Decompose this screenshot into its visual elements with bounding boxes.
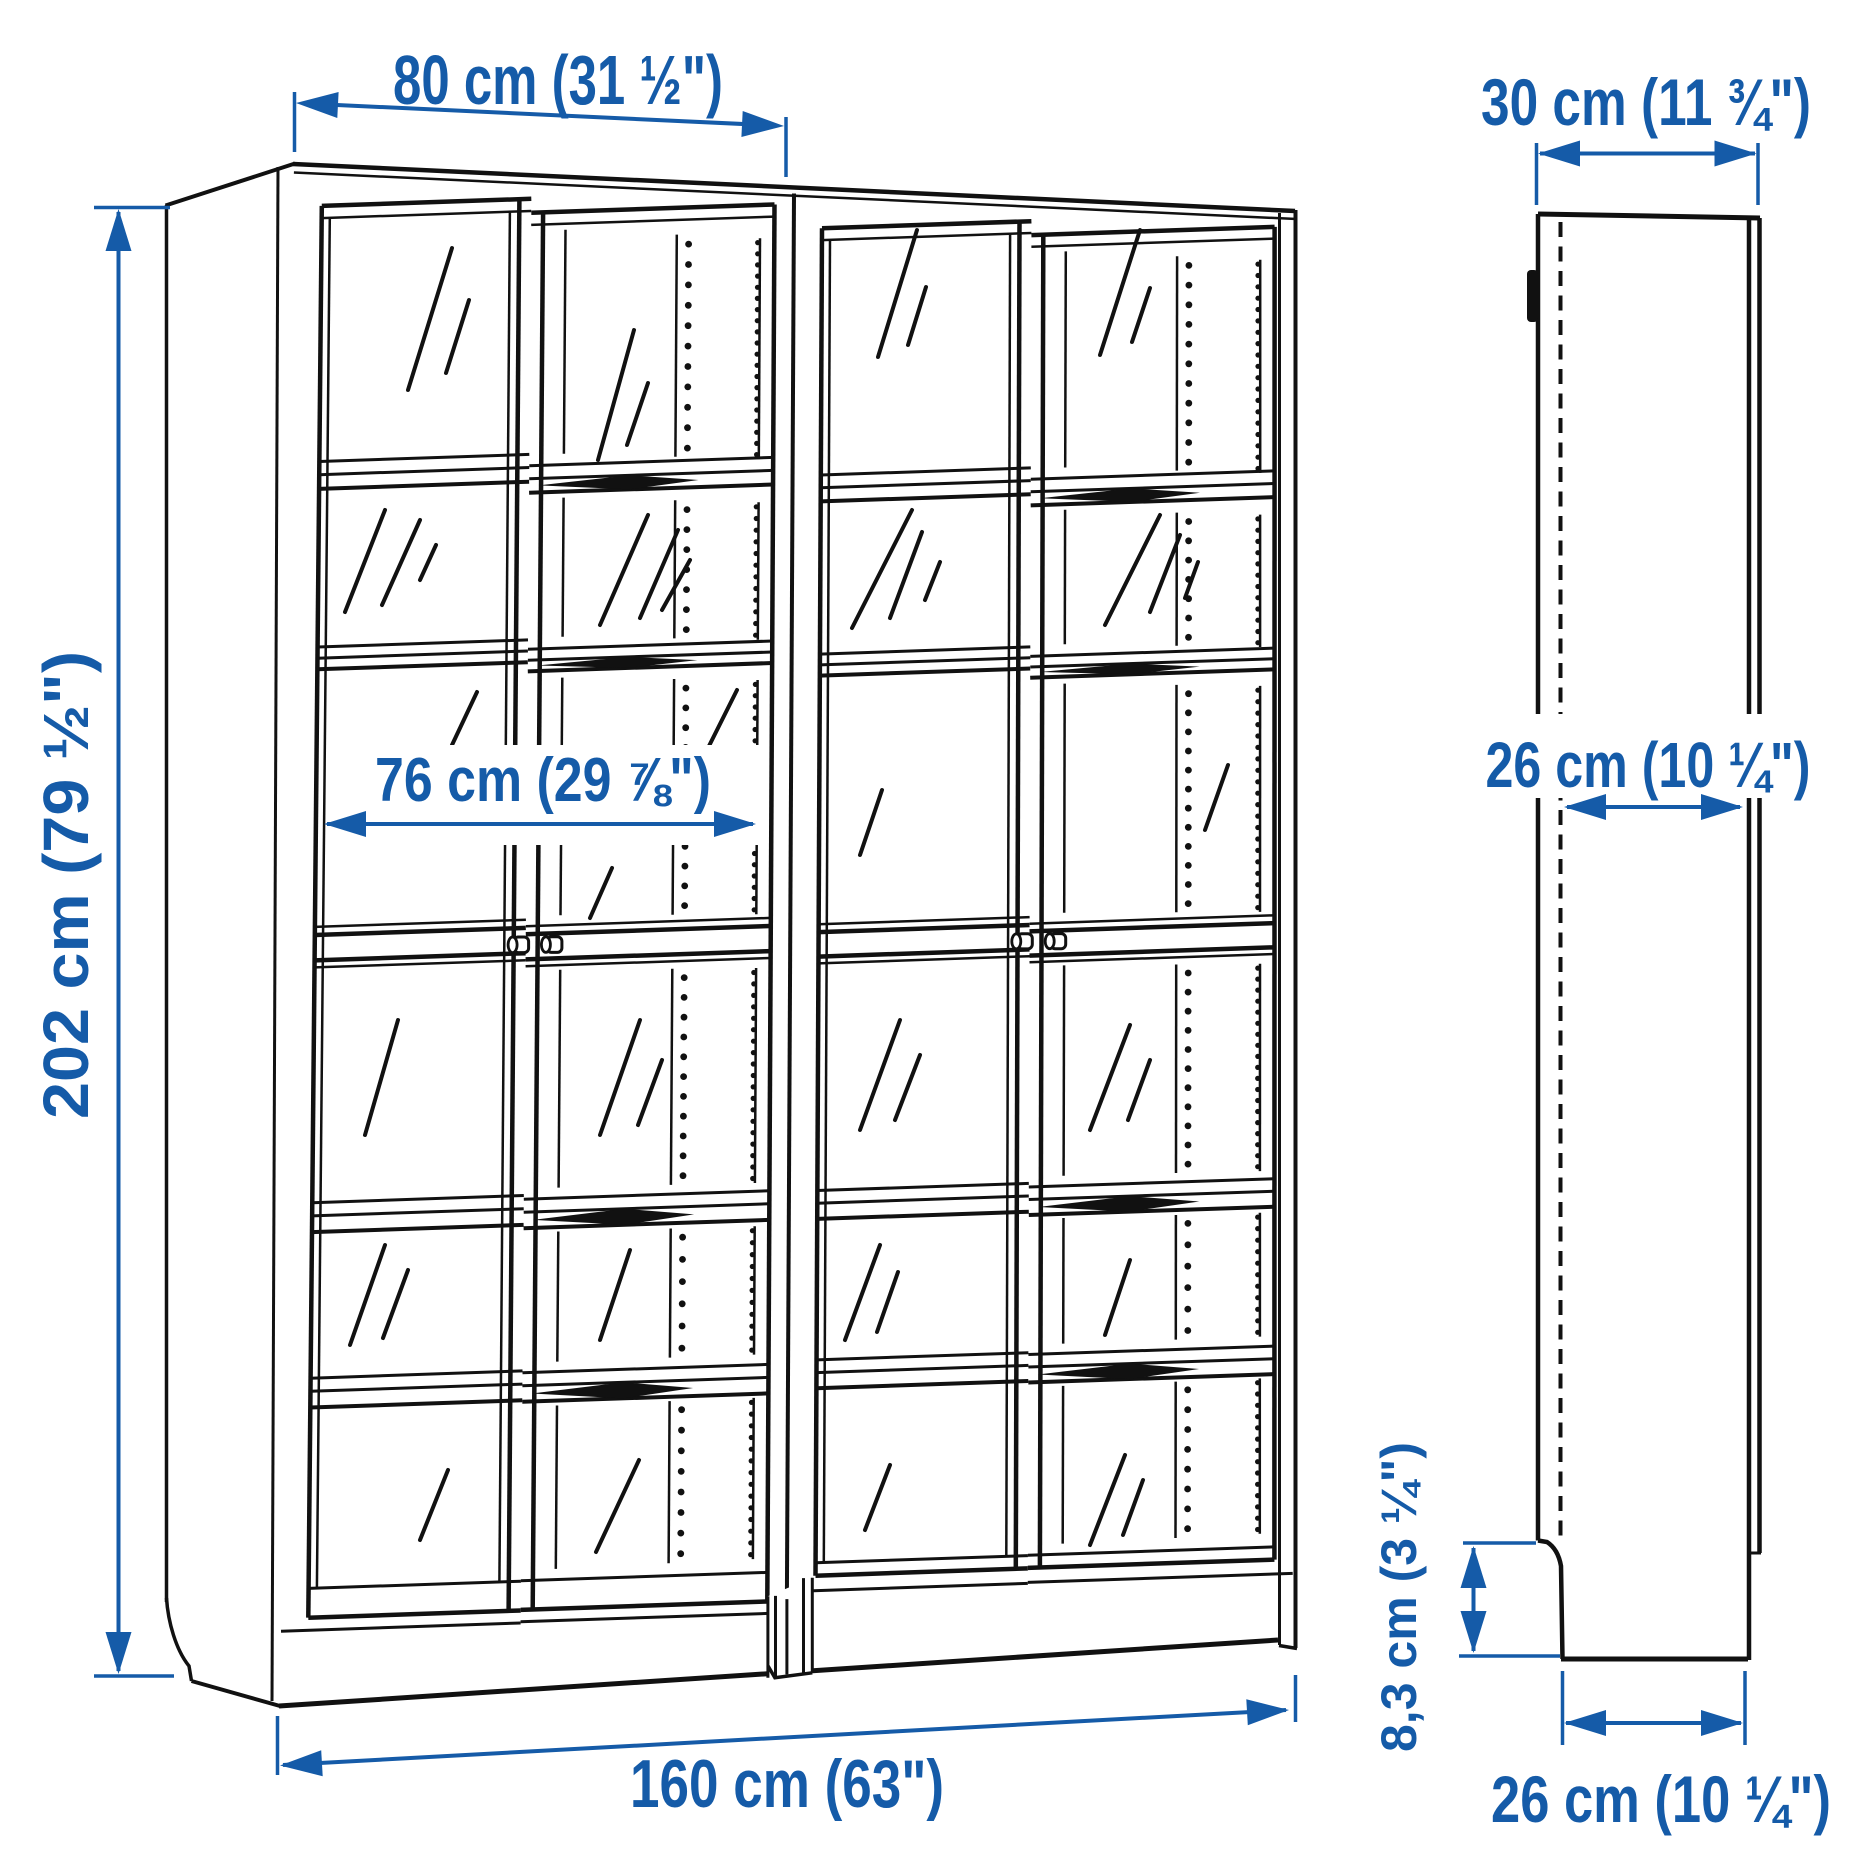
svg-text:30 cm (11 ¾"): 30 cm (11 ¾") — [1481, 65, 1811, 139]
svg-text:76 cm (29 ⅞"): 76 cm (29 ⅞") — [375, 746, 711, 815]
svg-text:202 cm (79 ½"): 202 cm (79 ½") — [30, 651, 102, 1119]
svg-text:26 cm (10 ¼"): 26 cm (10 ¼") — [1486, 729, 1811, 801]
svg-text:160 cm (63"): 160 cm (63") — [630, 1746, 944, 1822]
svg-text:80 cm (31 ½"): 80 cm (31 ½") — [393, 41, 723, 119]
svg-text:26 cm (10 ¼"): 26 cm (10 ¼") — [1491, 1762, 1831, 1836]
svg-text:8,3 cm (3 ¼"): 8,3 cm (3 ¼") — [1371, 1442, 1427, 1752]
